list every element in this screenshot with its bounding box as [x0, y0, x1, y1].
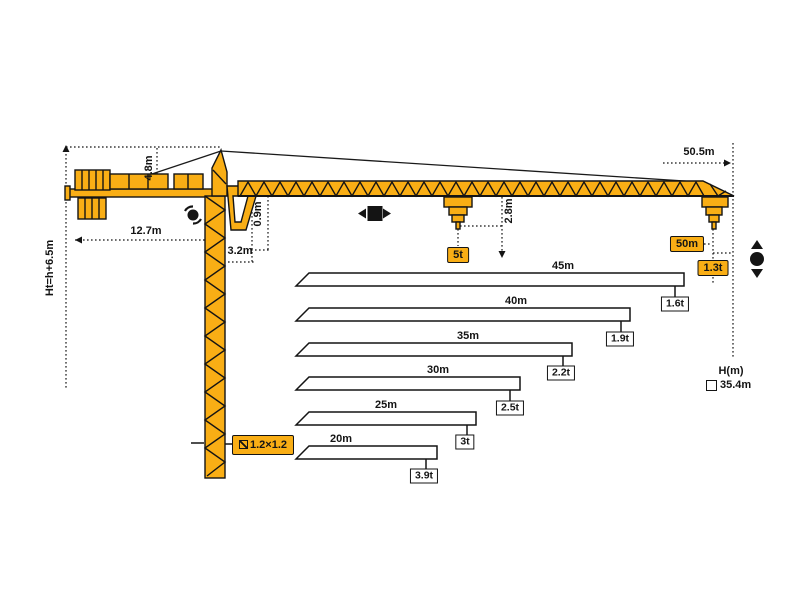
- bar-length-label: 25m: [375, 399, 397, 411]
- total-height-label: Ht=h+6.5m: [44, 240, 56, 296]
- hook-height-value: 35.4m: [720, 379, 751, 391]
- bar-length-label: 20m: [330, 433, 352, 445]
- trolley-drop-label: 2.8m: [503, 198, 515, 223]
- tip-load-value-tag: 2.2t: [547, 366, 575, 381]
- tip-load-value-tag: 3t: [455, 435, 474, 450]
- hook-shank: [712, 222, 716, 229]
- bar-25m: [296, 412, 476, 425]
- arrow-left-icon: [75, 237, 82, 244]
- hook-block-lower: [452, 215, 464, 222]
- hook-block-upper: [449, 207, 467, 215]
- jib-depth-label: 0.9m: [252, 201, 264, 226]
- trolley-hook-main: [444, 197, 472, 229]
- height-square-icon: [706, 380, 717, 391]
- section-square-icon: [239, 440, 248, 449]
- crane-diagram: Ht=h+6.5m 4.8m 12.7m 3.2m 0.9m 2.8m 50.5…: [0, 0, 800, 600]
- trolley-travel-icon: [358, 206, 391, 221]
- counterjib-length-label: 12.7m: [130, 225, 161, 237]
- tip-load-value-tag: 1.6t: [661, 297, 689, 312]
- hook-height-row: 35.4m: [706, 379, 751, 391]
- max-radius-label: 50.5m: [683, 146, 714, 158]
- head-height-label: 4.8m: [143, 155, 155, 180]
- bar-length-label: 35m: [457, 330, 479, 342]
- bar-length-label: 30m: [427, 364, 449, 376]
- jib-tie-line: [221, 151, 700, 182]
- counterweight-upper: [75, 170, 110, 190]
- hook-shank: [456, 222, 460, 229]
- slewing-rotation-icon: [185, 206, 201, 223]
- arrow-up-icon: [751, 240, 763, 249]
- hook-block-lower: [709, 215, 719, 222]
- hoist-dot: [750, 252, 764, 266]
- bar-length-label: 40m: [505, 295, 527, 307]
- bar-30m: [296, 377, 520, 390]
- tip-load-value-tag: 3.9t: [410, 469, 438, 484]
- counter-jib-end-cap: [65, 186, 70, 200]
- tip-load-value-tag: 1.9t: [606, 332, 634, 347]
- tip-load-value-tag: 2.5t: [496, 401, 524, 416]
- jib-length-bars: [296, 273, 684, 469]
- tip-radius-tag: 50m: [670, 236, 704, 252]
- mast-section-tag: 1.2×1.2: [232, 435, 294, 455]
- trolley-frame: [444, 197, 472, 207]
- trolley-square: [368, 206, 383, 221]
- bar-45m: [296, 273, 684, 286]
- bar-40m: [296, 308, 630, 321]
- hook-block-upper: [706, 207, 722, 215]
- mast-section-value: 1.2×1.2: [250, 439, 287, 451]
- slewing-dot: [188, 210, 199, 221]
- ballast-box-a: [110, 174, 168, 189]
- max-load-tag: 5t: [447, 247, 469, 263]
- tower-head: [212, 150, 227, 196]
- tip-load-tag: 1.3t: [698, 260, 729, 276]
- trolley-frame: [702, 197, 728, 207]
- bar-length-label: 45m: [552, 260, 574, 272]
- arrow-left-icon: [358, 209, 366, 219]
- bar-20m: [296, 446, 437, 459]
- trolley-hook-tip: [702, 197, 728, 229]
- hook-hoist-icon: [750, 240, 764, 278]
- arrow-down-icon: [751, 269, 763, 278]
- arrow-up-icon: [63, 145, 70, 152]
- hook-height-title: H(m): [718, 365, 743, 377]
- arrow-down-icon: [499, 251, 506, 258]
- arrow-right-icon: [383, 209, 391, 219]
- arrow-right-icon: [724, 160, 731, 167]
- root-offset-label: 3.2m: [227, 245, 252, 257]
- bar-35m: [296, 343, 572, 356]
